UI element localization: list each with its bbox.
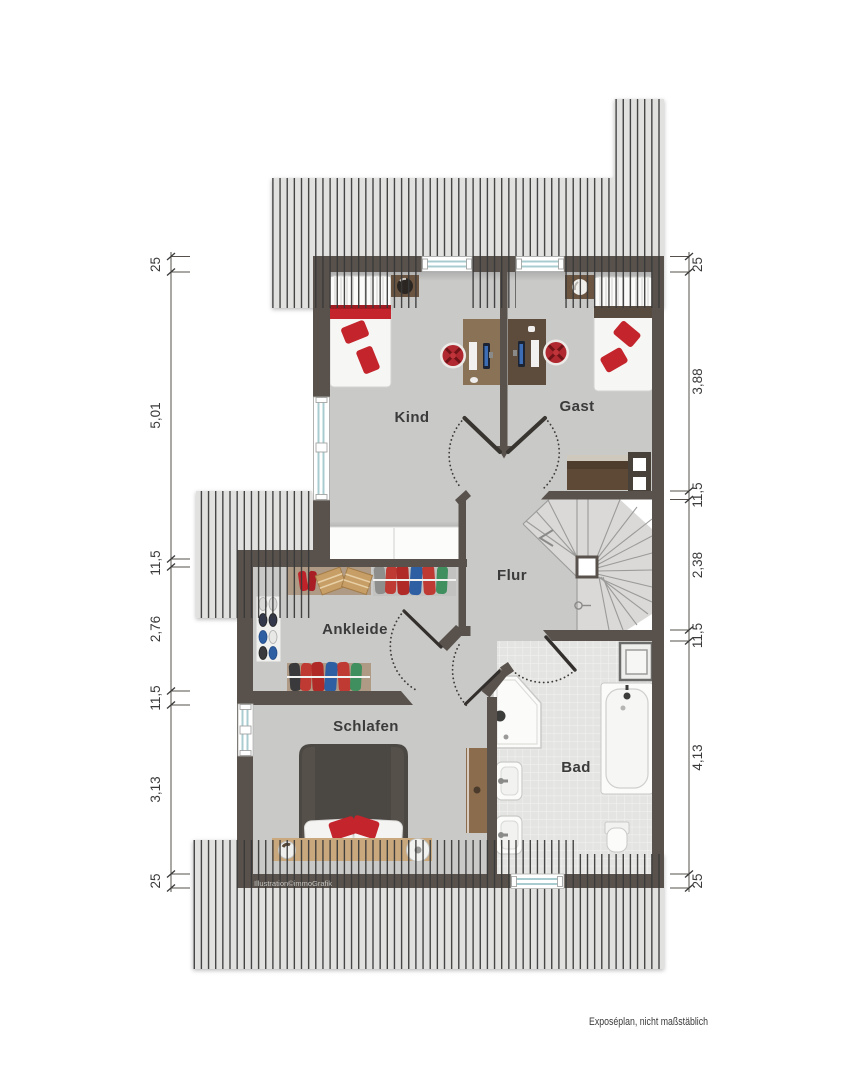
svg-text:Exposéplan, nicht maßstäblich: Exposéplan, nicht maßstäblich <box>589 1016 708 1028</box>
svg-text:5,01: 5,01 <box>148 402 163 428</box>
svg-text:11,5: 11,5 <box>148 550 163 575</box>
svg-text:2,38: 2,38 <box>690 552 705 578</box>
svg-text:Illustration©immoGrafik: Illustration©immoGrafik <box>254 879 332 888</box>
svg-text:25: 25 <box>690 873 705 888</box>
svg-text:11,5: 11,5 <box>690 482 705 507</box>
svg-text:25: 25 <box>148 873 163 888</box>
svg-text:Schlafen: Schlafen <box>333 718 399 735</box>
svg-text:Ankleide: Ankleide <box>322 621 388 638</box>
svg-text:Bad: Bad <box>561 759 591 776</box>
svg-text:Flur: Flur <box>497 567 527 584</box>
svg-text:25: 25 <box>690 257 705 272</box>
svg-text:4,13: 4,13 <box>690 744 705 770</box>
svg-text:25: 25 <box>148 257 163 272</box>
svg-text:Kind: Kind <box>395 409 430 426</box>
svg-text:Gast: Gast <box>560 398 595 415</box>
svg-text:11,5: 11,5 <box>690 623 705 648</box>
svg-text:3,88: 3,88 <box>690 368 705 394</box>
svg-text:2,76: 2,76 <box>148 616 163 642</box>
svg-text:11,5: 11,5 <box>148 685 163 710</box>
svg-text:3,13: 3,13 <box>148 776 163 802</box>
